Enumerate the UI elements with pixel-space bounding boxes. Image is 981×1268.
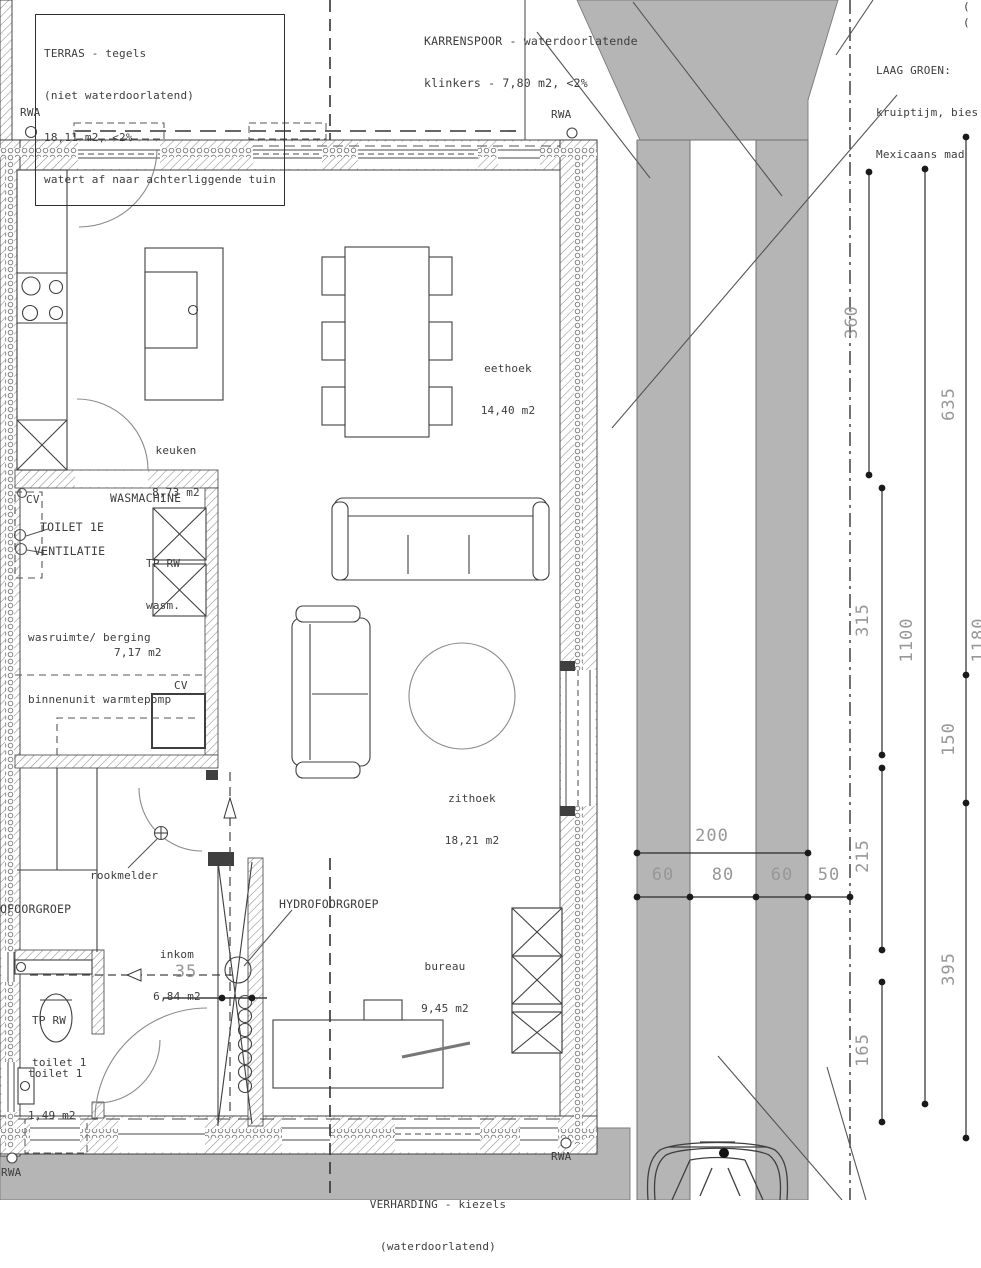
tp-rw-wasm-label: TP RW wasm. [146, 529, 180, 627]
dining-table [322, 247, 452, 437]
round-table [409, 643, 515, 749]
laag-groen-note: LAAG GROEN: kruiptijm, bies Mexicaans ma… [876, 36, 978, 176]
cabinet [512, 908, 562, 1053]
toilet-1e-label: TOILET 1E [40, 520, 104, 534]
wasmachine-label: WASMACHINE [110, 491, 181, 505]
stairs [218, 862, 252, 1124]
cv-label: CV [174, 679, 188, 693]
dim-635: 635 [939, 387, 959, 421]
room-label-wasruimte: wasruimte/ berging [28, 631, 151, 645]
sofa-large [332, 498, 549, 580]
dim-80: 80 [712, 865, 734, 885]
direction-arrow-icon [224, 798, 236, 818]
hydrofoorgroep-label: HYDROFOORGROEP [279, 897, 379, 911]
room-area-wasruimte: 7,17 m2 [114, 646, 162, 660]
dim-1100: 1100 [897, 618, 917, 663]
rwa-label: RWA [551, 1150, 571, 1164]
room-label-zithoek: zithoek 18,21 m2 [445, 764, 500, 862]
smoke-detector-icon [155, 827, 168, 840]
terras-note-line: (niet waterdoorlatend) [44, 89, 276, 103]
terras-note-line: 18,11 m2, <2% [44, 131, 276, 145]
dim-200: 200 [695, 826, 729, 846]
window-opening-right [560, 661, 596, 816]
verharding-note: VERHARDING - kiezels (waterdoorlatend) [370, 1170, 506, 1268]
door-arc-inkom [139, 788, 202, 851]
terras-note-line: TERRAS - tegels [44, 47, 276, 61]
rwa-label: RWA [20, 106, 40, 120]
rwa-label: RWA [1, 1166, 21, 1180]
ventilatie-label: VENTILATIE [34, 544, 105, 558]
door-arc-wasruimte [77, 399, 148, 470]
dim-60b: 60 [771, 865, 793, 885]
terras-note-line: watert af naar achterliggende tuin [44, 173, 276, 187]
dim-165: 165 [853, 1033, 873, 1067]
site-plan-page: { "colors": {"paving_gray":"#b5b5b5","li… [0, 0, 981, 1200]
hydrofoorgroep-left-label: OFOORGROEP [0, 902, 71, 916]
cv-label: CV [26, 493, 40, 507]
dim-50: 50 [818, 865, 840, 885]
clipped-note-fragment: ( [963, 0, 970, 14]
rwa-drain-icon [7, 1153, 17, 1163]
sofa-small [292, 606, 370, 778]
terras-note: TERRAS - tegels (niet waterdoorlatend) 1… [35, 14, 285, 206]
door-arc-entrance [95, 1008, 207, 1120]
clipped-note-fragment: ( [963, 16, 970, 30]
rwa-drain-icon [561, 1138, 571, 1148]
kitchen-island [145, 248, 223, 400]
dim-215: 215 [853, 839, 873, 873]
neighbour-wall [0, 0, 12, 140]
dim-315: 315 [853, 603, 873, 637]
room-label-eethoek: eethoek 14,40 m2 [481, 334, 536, 432]
leader-arrow-icon [127, 969, 141, 981]
dim-35: 35 [175, 962, 197, 982]
karrenspoor-strip-left [637, 140, 690, 1200]
tp-rw-toilet-label: TP RW toilet 1 [32, 986, 87, 1084]
karrenspoor-note: KARRENSPOOR - waterdoorlatende klinkers … [424, 6, 638, 104]
dim-395: 395 [939, 952, 959, 986]
dim-1180-clipped: 1180 [969, 618, 981, 663]
dim-150: 150 [939, 722, 959, 756]
rookmelder-label: rookmelder [90, 869, 158, 883]
kitchen-counter [17, 170, 67, 470]
rwa-drain-icon [567, 128, 577, 138]
karrenspoor-strip-right [756, 140, 808, 1200]
rwa-label: RWA [551, 108, 571, 122]
dim-360: 360 [842, 305, 862, 339]
binnenunit-label: binnenunit warmtepomp [28, 693, 171, 707]
dim-60a: 60 [652, 865, 674, 885]
room-label-bureau: bureau 9,45 m2 [421, 932, 469, 1030]
